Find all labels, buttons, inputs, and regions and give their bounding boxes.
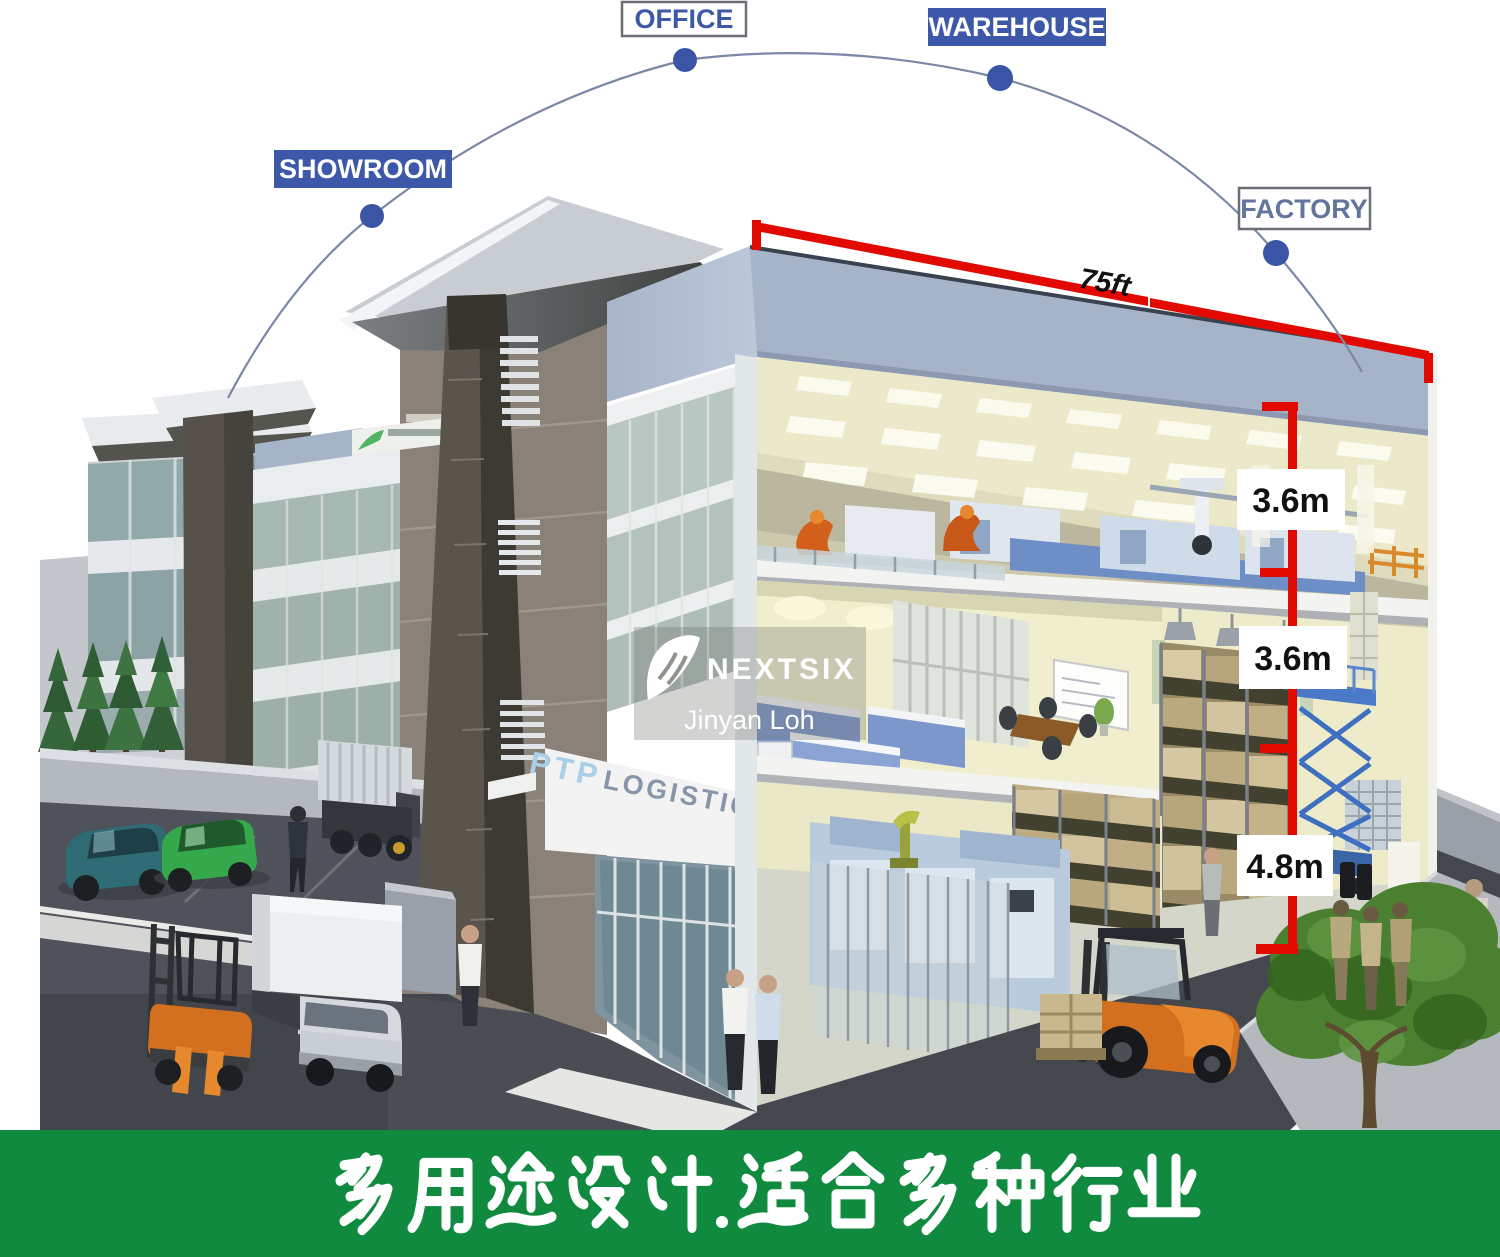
svg-text:NEXTSIX: NEXTSIX <box>707 653 856 686</box>
svg-text:WAREHOUSE: WAREHOUSE <box>928 12 1105 42</box>
svg-text:Jinyan Loh: Jinyan Loh <box>684 705 815 735</box>
svg-text:3.6m: 3.6m <box>1252 482 1330 520</box>
svg-text:OFFICE: OFFICE <box>635 4 734 34</box>
svg-text:3.6m: 3.6m <box>1254 640 1332 678</box>
svg-text:FACTORY: FACTORY <box>1240 194 1368 224</box>
svg-text:SHOWROOM: SHOWROOM <box>279 154 447 184</box>
svg-text:4.8m: 4.8m <box>1246 848 1324 886</box>
